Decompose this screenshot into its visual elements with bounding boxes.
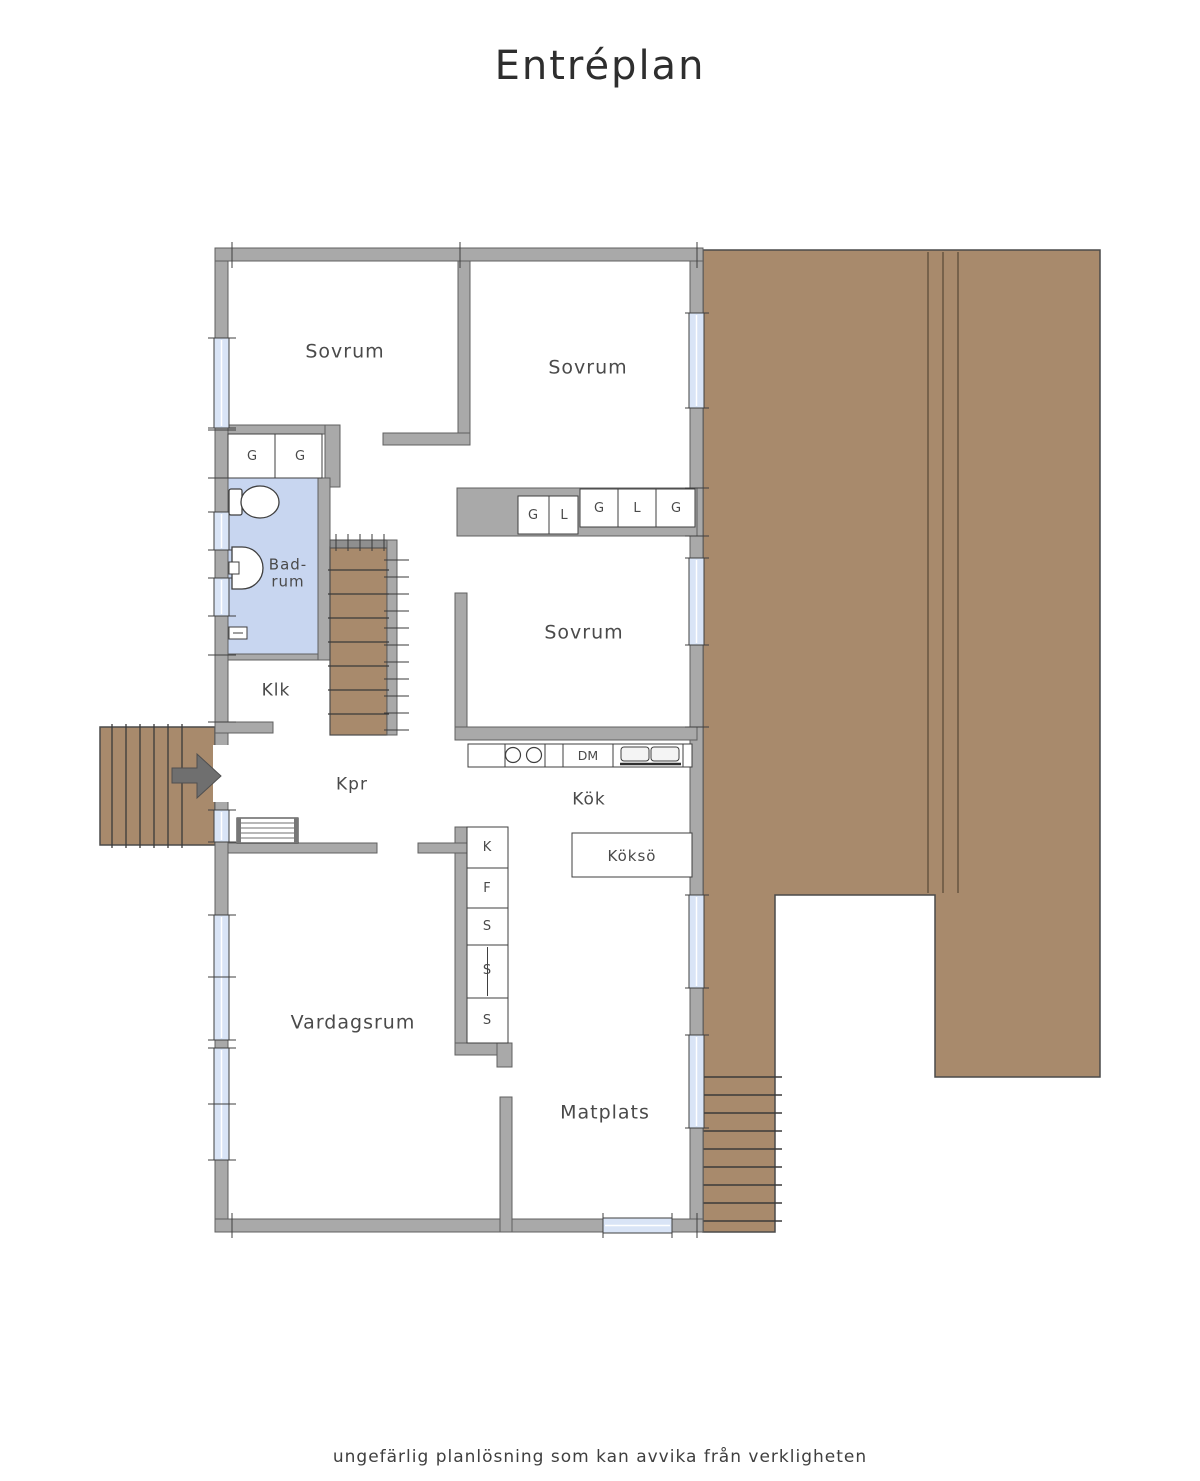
wardrobe-label-g: G (528, 509, 538, 523)
appliance-label-dishwasher: DM (578, 749, 598, 763)
room-label-matplats: Matplats (560, 1103, 650, 1124)
cabinet-label-f: F (483, 882, 490, 896)
wardrobe-label-l: L (633, 502, 640, 516)
cabinet-label-s: S (483, 964, 491, 978)
interior-staircase (328, 534, 409, 735)
floorplan-canvas: Sovrum Sovrum Sovrum Bad- rum Klk Kpr Kö… (0, 0, 1200, 1481)
sink-basin-icon (621, 747, 649, 761)
hob-burner-icon (506, 748, 521, 763)
room-label-klk: Klk (262, 682, 291, 701)
room-label-badrum: Bad- rum (269, 557, 307, 590)
room-label-sovrum-2: Sovrum (548, 358, 627, 379)
wardrobe-label-g: G (594, 502, 604, 516)
floorplan-drawing (0, 0, 1200, 1481)
wardrobe-label-g: G (671, 502, 681, 516)
room-label-sovrum-3: Sovrum (544, 623, 623, 644)
tall-cabinet-run (467, 827, 508, 1043)
wardrobe-label-l: L (560, 509, 567, 523)
toilet-bowl-icon (241, 486, 279, 518)
room-label-vardagsrum: Vardagsrum (291, 1013, 416, 1034)
label-kitchen-island: Köksö (608, 848, 657, 865)
radiator (237, 818, 298, 843)
room-label-sovrum-1: Sovrum (305, 342, 384, 363)
hall-wardrobe-row (518, 489, 695, 534)
toilet-icon (229, 489, 242, 515)
disclaimer-text: ungefärlig planlösning som kan avvika fr… (333, 1447, 867, 1467)
cabinet-label-s: S (483, 920, 491, 934)
room-label-kpr: Kpr (336, 776, 368, 795)
deck-terrace (698, 250, 1100, 1232)
wardrobe-label-g: G (247, 450, 257, 464)
bedroom1-wardrobes (228, 434, 322, 478)
cabinet-label-k: K (483, 841, 492, 855)
cabinet-label-s: S (483, 1014, 491, 1028)
basin-tap-icon (229, 562, 239, 574)
wardrobe-label-g: G (295, 450, 305, 464)
sink-basin-icon (651, 747, 679, 761)
hob-burner-icon (527, 748, 542, 763)
room-label-kok: Kök (572, 791, 606, 810)
floorplan-page: Entréplan (0, 0, 1200, 1481)
